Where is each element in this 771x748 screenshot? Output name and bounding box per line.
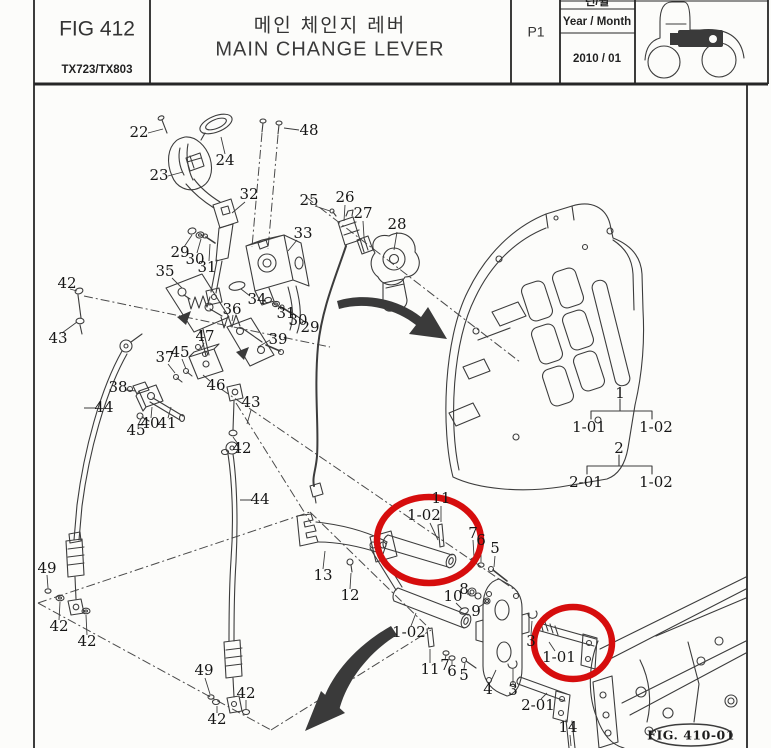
part-label-31: 31 (197, 258, 216, 276)
part-label-42: 42 (77, 632, 96, 650)
part-label-35: 35 (155, 262, 174, 280)
part-label-5: 5 (490, 539, 500, 557)
part-label-1-01: 1-01 (542, 648, 576, 666)
part-label-47: 47 (195, 327, 214, 345)
part-label-26: 26 (335, 188, 354, 206)
construction-lines (38, 133, 520, 730)
assembly-tree: 1 1-01 1-02 2 2-01 1-02 (569, 384, 673, 491)
part-label-49: 49 (37, 559, 56, 577)
tree-parent-1: 1 (615, 384, 625, 402)
part-label-14: 14 (558, 718, 577, 736)
part-label-38: 38 (108, 378, 127, 396)
part-label-43: 43 (241, 393, 260, 411)
part-label-34: 34 (247, 290, 266, 308)
part-label-27: 27 (353, 204, 372, 222)
part-label-42: 42 (232, 439, 251, 457)
part-label-49: 49 (194, 661, 213, 679)
tree-parent-2: 2 (614, 439, 624, 457)
part-label-1-02: 1-02 (392, 623, 426, 641)
tree-child-1-02: 1-02 (639, 418, 673, 436)
figure-number: FIG 412 (59, 18, 135, 41)
right-cable-art (208, 384, 250, 715)
year-month-korean: 년/월 (585, 0, 609, 8)
part-label-13: 13 (313, 566, 332, 584)
part-labels-layer: 2223244832252627282930313334353631302939… (37, 121, 577, 736)
part-label-48: 48 (299, 121, 318, 139)
part-label-5: 5 (459, 666, 469, 684)
part-label-41: 41 (157, 414, 176, 432)
part-label-42: 42 (207, 710, 226, 728)
part-label-33: 33 (293, 224, 312, 242)
tractor-icon (645, 2, 744, 78)
highlight-circles (377, 497, 612, 679)
part-label-25: 25 (299, 191, 318, 209)
highlight-circle-1-01 (534, 607, 612, 679)
part-label-43: 43 (48, 329, 67, 347)
part-label-23: 23 (149, 166, 168, 184)
tree-child-2-01: 2-01 (569, 473, 603, 491)
arrow-to-fender (337, 297, 447, 339)
part-label-44: 44 (94, 398, 113, 416)
part-label-12: 12 (340, 586, 359, 604)
figure-reference: FIG. 410-01 (647, 724, 735, 746)
part-label-9: 9 (471, 602, 481, 620)
part-label-32: 32 (239, 185, 258, 203)
part-label-3: 3 (526, 632, 536, 650)
part-label-11: 11 (420, 660, 439, 678)
part-label-4: 4 (483, 680, 493, 698)
model-number: TX723/TX803 (62, 64, 133, 76)
part-label-39: 39 (268, 330, 287, 348)
part-label-28: 28 (387, 215, 406, 233)
part-label-42: 42 (236, 684, 255, 702)
year-month-label: Year / Month (563, 16, 631, 28)
year-month-value: 2010 / 01 (573, 53, 622, 65)
part-label-29: 29 (300, 318, 319, 336)
arrow-down-left-tail (321, 626, 397, 711)
title-english: MAIN CHANGE LEVER (215, 38, 444, 60)
part-label-36: 36 (222, 300, 241, 318)
page-number: P1 (527, 24, 544, 40)
part-label-8: 8 (459, 580, 469, 598)
parts-catalog-page: FIG 412 TX723/TX803 메인 체인지 레버 MAIN CHANG… (0, 0, 771, 748)
part-label-3: 3 (508, 681, 518, 699)
part-label-44: 44 (250, 490, 269, 508)
part-label-6: 6 (476, 531, 486, 549)
title-korean: 메인 체인지 레버 (254, 15, 406, 37)
part-label-42: 42 (57, 274, 76, 292)
figure-reference-label: FIG. 410-01 (647, 728, 735, 743)
part-label-1-02: 1-02 (407, 506, 441, 524)
part-label-46: 46 (206, 376, 225, 394)
tree-child-2-1-02: 1-02 (639, 473, 673, 491)
wire-harness-art (310, 209, 419, 503)
part-label-6: 6 (447, 662, 457, 680)
tree-child-1-01: 1-01 (572, 418, 606, 436)
part-label-2-01: 2-01 (521, 696, 555, 714)
part-label-45: 45 (126, 421, 145, 439)
part-label-11: 11 (431, 489, 450, 507)
part-label-24: 24 (215, 151, 234, 169)
transmission-case-art (590, 577, 746, 748)
part-label-45: 45 (170, 343, 189, 361)
part-label-42: 42 (49, 617, 68, 635)
part-label-22: 22 (129, 123, 148, 141)
